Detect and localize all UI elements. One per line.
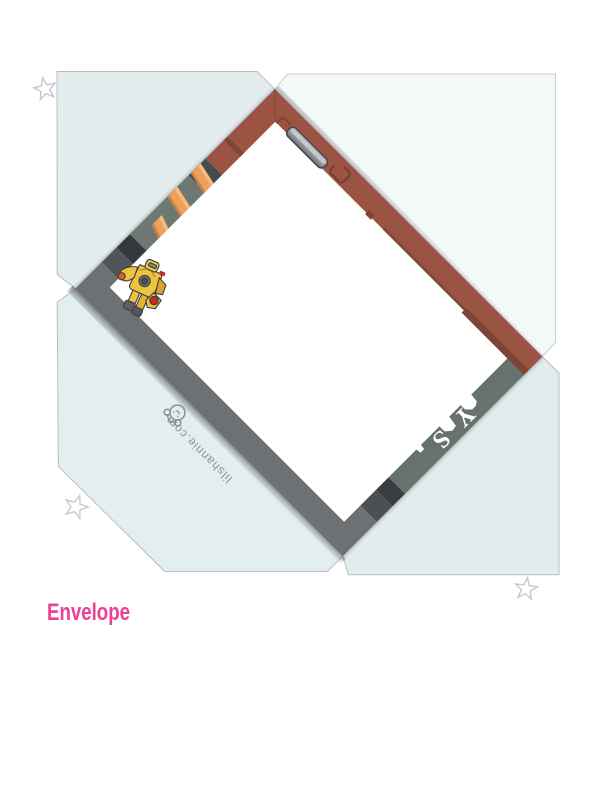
svg-text:Envelope: Envelope <box>47 599 130 626</box>
